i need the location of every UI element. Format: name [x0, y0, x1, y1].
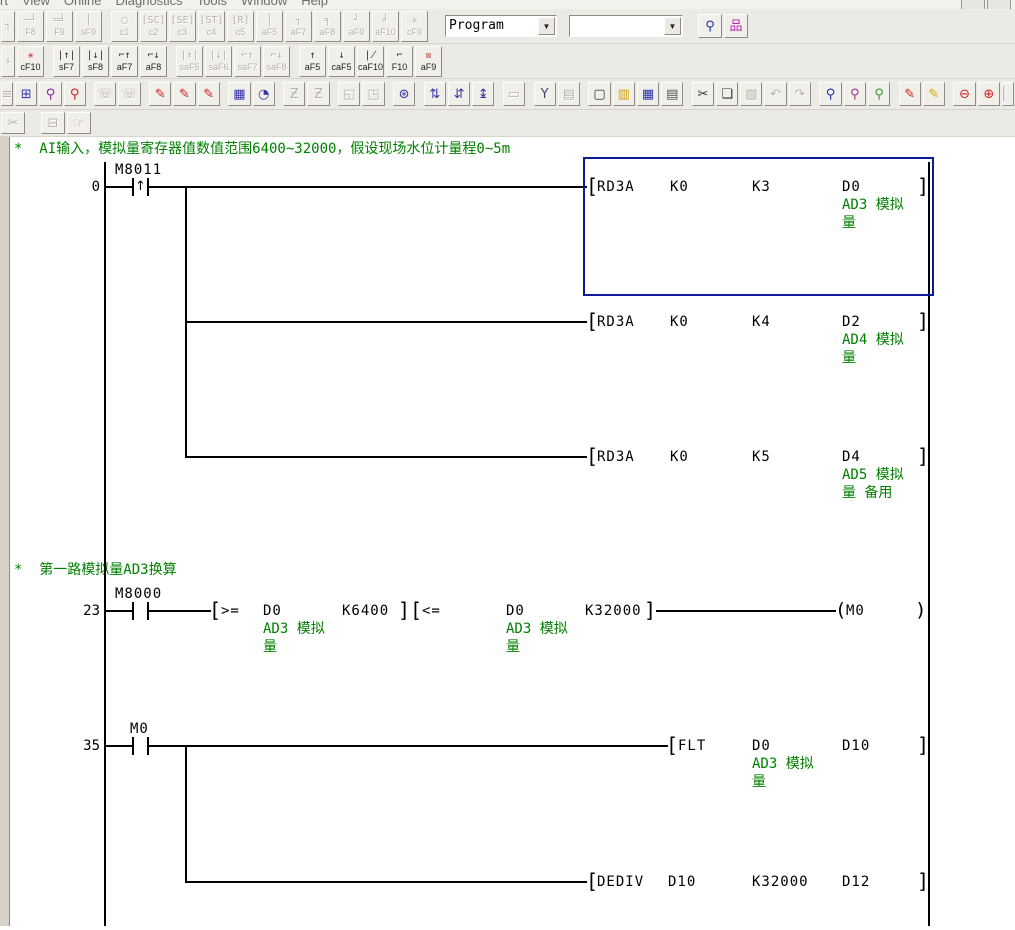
rung35-step-number: 35 — [60, 738, 100, 754]
instruction-bracket-left — [209, 599, 221, 621]
ladder-symbol-af5[interactable]: │ aF5 — [256, 11, 283, 42]
instruction-bracket-right — [917, 175, 929, 197]
rung0-inst1-opcode[interactable]: RD3A — [597, 179, 635, 195]
toolbar-separator — [45, 49, 52, 73]
menu-window[interactable]: Window — [241, 0, 287, 8]
falling-pulse-close-saf6[interactable]: |↓| saF6 — [205, 46, 232, 77]
device-comment: AD3 模拟 — [506, 621, 568, 637]
open-file-icon[interactable]: ▥ — [613, 82, 635, 106]
insert-row-af5[interactable]: ↑ aF5 — [299, 46, 326, 77]
sampling-trace-icon[interactable]: ◔ — [253, 82, 275, 106]
falling-pulse-close-branch-saf8[interactable]: ⌐↓ saF8 — [263, 46, 290, 77]
ladder-view-icon[interactable]: ▤ — [558, 82, 580, 106]
menu-convert-partial[interactable]: rt — [0, 0, 8, 8]
combo-dropdown-arrow-icon[interactable]: ▼ — [664, 17, 681, 35]
rung0-inst2-operand1[interactable]: K0 — [670, 314, 689, 330]
rung23-cmp2-operand1[interactable]: D0 — [506, 603, 525, 619]
toolbar-separator — [495, 82, 501, 106]
device-comment: 量 — [752, 774, 766, 790]
delete-row-caf5[interactable]: ↓ caF5 — [328, 46, 355, 77]
menu-online[interactable]: Online — [64, 0, 102, 8]
rung35-inst1-operand1[interactable]: D0 — [752, 738, 771, 754]
block-select-value[interactable] — [573, 18, 653, 33]
ladder-symbol-c5[interactable]: [R] c5 — [227, 11, 254, 42]
delete-symbol-cf10[interactable]: ✳ cF10 — [17, 46, 44, 77]
rising-pulse-close-saf5[interactable]: |↑| saF5 — [176, 46, 203, 77]
ladder-editor[interactable]: * AI输入，模拟量寄存器值数值范围6400~32000，假设现场水位计量程0~… — [0, 137, 1015, 926]
paste-icon[interactable]: ▧ — [740, 82, 762, 106]
toolbar-separator — [33, 111, 40, 135]
print-preview-icon[interactable]: ⊟ — [41, 112, 65, 134]
rising-edge-arrow-icon — [135, 179, 146, 195]
device-entry-write-icon[interactable]: ✎ — [149, 82, 171, 106]
secondary-toolbar: ✂ ⊟ ☞ — [0, 110, 1015, 137]
rung23-cmp1-operand2[interactable]: K6400 — [342, 603, 389, 619]
rung35-inst2-opcode[interactable]: DEDIV — [597, 874, 644, 890]
ladder-symbol-f9[interactable]: ═╛ F9 — [46, 11, 73, 42]
network-monitor-icon[interactable]: ⊛ — [393, 82, 415, 106]
save-file-icon[interactable]: ▦ — [637, 82, 659, 106]
toolbar-separator — [221, 82, 227, 106]
instruction-bracket-left — [410, 599, 422, 621]
new-file-icon[interactable]: ▢ — [588, 82, 610, 106]
ladder-edit-mode-icon[interactable]: ⊞ — [15, 82, 37, 106]
instruction-bracket-right — [917, 734, 929, 756]
toolbar-separator — [526, 82, 532, 106]
toolbar-separator — [291, 49, 298, 73]
device-batch-monitor-icon[interactable]: ▦ — [228, 82, 250, 106]
main-icon-toolbar: ≡ ⊞ ⚲ ⚲ ☏ ☏ ✎ ✎ ✎ ▦ ◔ Ƶ — [0, 79, 1015, 110]
scan-time-down-icon[interactable]: ⇵ — [448, 82, 470, 106]
rung0-rising-contact[interactable] — [132, 178, 134, 196]
toolbar-separator — [812, 82, 818, 106]
rung-comment-ai-input: * AI输入，模拟量寄存器值数值范围6400~32000，假设现场水位计量程0~… — [14, 141, 510, 158]
rung23-cmp2-operand2[interactable]: K32000 — [585, 603, 642, 619]
statement-write-icon[interactable]: ✎ — [923, 82, 945, 106]
contact-list-icon[interactable]: ☏ — [94, 82, 116, 106]
wire-segment — [149, 186, 587, 188]
toolbar-separator — [87, 82, 93, 106]
wire-segment — [105, 745, 132, 747]
toolbar-separator — [684, 82, 690, 106]
menu-bar: rtViewOnlineDiagnosticsToolsWindowHelp — [0, 0, 1015, 9]
ladder-symbol-af9[interactable]: ┘ aF9 — [343, 11, 370, 42]
rung0-inst3-operand1[interactable]: K0 — [670, 449, 689, 465]
wire-segment — [185, 321, 587, 323]
device-comment: AD3 模拟 — [263, 621, 325, 637]
rung-comment-ad3-scaling: * 第一路模拟量AD3换算 — [14, 562, 177, 579]
delete-line-caf10[interactable]: ∤ caF10 — [357, 46, 384, 77]
instruction-bracket-right — [917, 310, 929, 332]
pulse-symbol-partial[interactable]: ↓ — [1, 46, 15, 77]
ladder-symbol-c4[interactable]: [ST] c4 — [198, 11, 225, 42]
ladder-symbol-c1[interactable]: ▢ c1 — [111, 11, 138, 42]
rung0-contact-label: M8011 — [115, 162, 162, 178]
pan-hand-icon[interactable]: ☞ — [67, 112, 91, 134]
ladder-symbol-partial[interactable]: ┐ — [1, 11, 15, 42]
toolbar-separator — [26, 111, 33, 135]
instruction-bracket-left — [666, 734, 678, 756]
print-icon[interactable]: ▤ — [661, 82, 683, 106]
scan-time-up-icon[interactable]: ⇅ — [424, 82, 446, 106]
device-comment: AD5 模拟 — [842, 467, 904, 483]
ladder-symbol-c3[interactable]: [SE] c3 — [169, 11, 196, 42]
device-comment: AD3 模拟 — [752, 756, 814, 772]
wire-segment — [149, 745, 668, 747]
menu-help[interactable]: Help — [301, 0, 328, 8]
ladder-symbol-f8[interactable]: ─┘ F8 — [17, 11, 44, 42]
rung35-inst1-operand2[interactable]: D10 — [842, 738, 870, 754]
wire-segment — [105, 186, 132, 188]
ladder-symbol-cf9[interactable]: ✳ cF9 — [401, 11, 428, 42]
rung23-coil-device[interactable]: M0 — [846, 603, 865, 619]
device-comment: 量 — [506, 639, 520, 655]
copy-icon[interactable]: ❏ — [716, 82, 738, 106]
rung23-cmp2-opcode[interactable]: <= — [422, 603, 441, 619]
toolbar-separator — [946, 82, 952, 106]
comment-write-icon[interactable]: ✎ — [899, 82, 921, 106]
rung35-contact-label: M0 — [130, 721, 149, 737]
rung0-inst3-operand3[interactable]: D4 — [842, 449, 861, 465]
ladder-symbol-af7[interactable]: ┐ aF7 — [285, 11, 312, 42]
falling-pulse-branch-af8[interactable]: ⌐↓ aF8 — [140, 46, 167, 77]
combo-dropdown-arrow-icon[interactable]: ▼ — [538, 17, 555, 35]
zoom-in-icon[interactable]: ⊕ — [978, 82, 1000, 106]
coil-paren-right — [915, 600, 926, 621]
instruction-bracket-right — [644, 599, 656, 621]
device-comment: 量 — [263, 639, 277, 655]
wire-segment — [185, 881, 587, 883]
rung23-contact[interactable] — [132, 602, 134, 620]
change-value-icon[interactable]: ✎ — [198, 82, 220, 106]
monitor-screen-icon[interactable]: ▭ — [503, 82, 525, 106]
project-data-list-icon[interactable]: Y — [534, 82, 556, 106]
selection-cursor-box — [583, 157, 934, 296]
partial-run-icon[interactable]: Ƶ — [307, 82, 329, 106]
rung35-inst2-operand3[interactable]: D12 — [842, 874, 870, 890]
toolbar-separator — [142, 82, 148, 106]
toolbar-separator — [168, 49, 175, 73]
gx-developer-window: rtViewOnlineDiagnosticsToolsWindowHelp ┐… — [0, 0, 1015, 930]
instruction-bracket-right — [917, 870, 929, 892]
rising-pulse-close-branch-saf7[interactable]: ⌐↑ saF7 — [234, 46, 261, 77]
find-replace-icon[interactable]: ⚲ — [844, 82, 866, 106]
draw-line-f10[interactable]: ⌐ F10 — [386, 46, 413, 77]
wire-segment — [185, 456, 587, 458]
rung23-step-number: 23 — [60, 603, 100, 619]
step-run-icon[interactable]: Ƶ — [283, 82, 305, 106]
ladder-symbol-af8[interactable]: ╕ aF8 — [314, 11, 341, 42]
rung0-inst2-operand3[interactable]: D2 — [842, 314, 861, 330]
device-test-icon[interactable]: ⚲ — [64, 82, 86, 106]
rung0-inst2-opcode[interactable]: RD3A — [597, 314, 635, 330]
wire-segment — [656, 610, 836, 612]
row4-partial-icon[interactable]: ✂ — [1, 112, 25, 134]
toolbar-separator — [891, 82, 897, 106]
rung0-inst1-operand1[interactable]: K0 — [670, 179, 689, 195]
rung0-inst3-operand2[interactable]: K5 — [752, 449, 771, 465]
toolbar-partial-left-icon[interactable]: ≡ — [1, 82, 13, 106]
undo-icon[interactable]: ↶ — [764, 82, 786, 106]
cut-icon[interactable]: ✂ — [692, 82, 714, 106]
program-type-combo[interactable]: ▼ — [445, 15, 557, 37]
toolbar-separator — [416, 82, 422, 106]
instruction-bracket-right — [917, 445, 929, 467]
rung0-inst3-opcode[interactable]: RD3A — [597, 449, 635, 465]
wire-segment — [149, 610, 211, 612]
branch-wire — [185, 745, 187, 882]
toolbar-separator — [386, 82, 392, 106]
pulse-symbol-toolbar: ↓ ✳ cF10 |↑| sF7 |↓| sF8 ⌐↑ aF7 ⌐↓ aF8 |… — [0, 44, 1015, 79]
toolbar-separator — [103, 14, 110, 38]
rung0-inst1-operand2[interactable]: K3 — [752, 179, 771, 195]
toolbar-separator — [331, 82, 337, 106]
window-new-icon[interactable]: ◳ — [362, 82, 384, 106]
rising-pulse-branch-af7[interactable]: ⌐↑ aF7 — [111, 46, 138, 77]
block-select-combo[interactable]: ▼ — [569, 15, 683, 37]
delete-line-af9[interactable]: ☒ aF9 — [415, 46, 442, 77]
toolbar-separator — [581, 82, 587, 106]
toolbar-partial-right-icon[interactable]: ▏ — [1002, 82, 1014, 106]
wire-segment — [105, 610, 132, 612]
rung23-cmp1-opcode[interactable]: >= — [221, 603, 240, 619]
device-use-list-icon[interactable]: ☏ — [118, 82, 140, 106]
rung35-inst2-operand2[interactable]: K32000 — [752, 874, 809, 890]
rung0-inst2-operand2[interactable]: K4 — [752, 314, 771, 330]
ladder-write-icon[interactable]: ✎ — [173, 82, 195, 106]
coil-paren-left — [835, 600, 846, 621]
instruction-bracket-right — [398, 599, 410, 621]
redo-icon[interactable]: ↷ — [789, 82, 811, 106]
device-comment: 量 备用 — [842, 485, 892, 501]
ladder-symbol-c2[interactable]: [SC] c2 — [140, 11, 167, 42]
ladder-symbol-sf9[interactable]: │ sF9 — [75, 11, 102, 42]
editor-left-border — [0, 137, 10, 926]
project-tree-toggle-button[interactable]: 品 — [724, 14, 748, 38]
find-string-icon[interactable]: ⚲ — [868, 82, 890, 106]
menu-tools[interactable]: Tools — [197, 0, 227, 8]
left-power-rail — [104, 162, 106, 926]
menu-diagnostics[interactable]: Diagnostics — [115, 0, 182, 8]
rung35-inst2-operand1[interactable]: D10 — [668, 874, 696, 890]
rung0-inst1-operand3[interactable]: D0 — [842, 179, 861, 195]
toolbar-separator — [276, 82, 282, 106]
falling-pulse-contact-sf8[interactable]: |↓| sF8 — [82, 46, 109, 77]
rung23-cmp1-operand1[interactable]: D0 — [263, 603, 282, 619]
program-type-value[interactable] — [449, 18, 529, 33]
ladder-symbol-af10[interactable]: ╛ aF10 — [372, 11, 399, 42]
scan-time-auto-icon[interactable]: ↨ — [472, 82, 494, 106]
rung23-contact-label: M8000 — [115, 586, 162, 602]
rising-pulse-contact-sf7[interactable]: |↑| sF7 — [53, 46, 80, 77]
window-restore-icon[interactable]: ◱ — [338, 82, 360, 106]
find-in-program-button[interactable]: ⚲ — [698, 14, 722, 38]
ladder-symbol-toolbar: ┐ ─┘ F8 ═╛ F9 │ sF9 ▢ c1 [SC] c2 — [0, 9, 1015, 44]
zoom-out-icon[interactable]: ⊖ — [953, 82, 975, 106]
find-icon[interactable]: ⚲ — [819, 82, 841, 106]
device-find-icon[interactable]: ⚲ — [39, 82, 61, 106]
device-comment: AD4 模拟 — [842, 332, 904, 348]
rung35-inst1-opcode[interactable]: FLT — [678, 738, 706, 754]
device-comment: AD3 模拟 — [842, 197, 904, 213]
rung35-contact[interactable] — [132, 737, 134, 755]
menu-view[interactable]: View — [22, 0, 50, 8]
rung0-step-number: 0 — [60, 179, 100, 195]
device-comment: 量 — [842, 215, 856, 231]
device-comment: 量 — [842, 350, 856, 366]
